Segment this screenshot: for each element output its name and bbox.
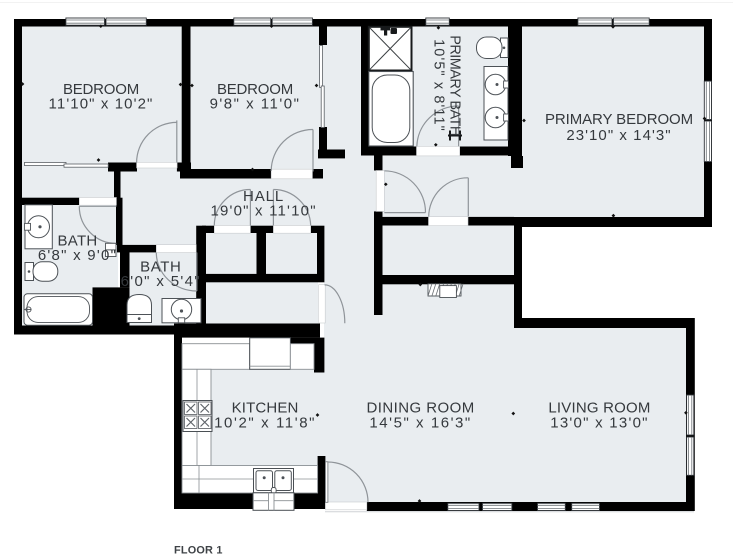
svg-text:FLOOR 1: FLOOR 1 [174,545,223,557]
svg-text:13'0" x 13'0": 13'0" x 13'0" [550,414,649,431]
svg-text:PRIMARY BEDROOM: PRIMARY BEDROOM [545,111,693,128]
svg-text:9'8" x 11'0": 9'8" x 11'0" [210,96,301,113]
svg-text:23'10" x 14'3": 23'10" x 14'3" [566,127,671,144]
svg-text:6'8" x 9'0": 6'8" x 9'0" [38,247,117,264]
svg-text:10'5" x 8'11": 10'5" x 8'11" [430,39,446,132]
svg-text:10'2" x 11'8": 10'2" x 11'8" [214,414,316,431]
svg-text:PRIMARY BATH: PRIMARY BATH [446,35,462,136]
svg-text:6'0" x 5'4": 6'0" x 5'4" [121,273,201,290]
svg-text:19'0" x 11'10": 19'0" x 11'10" [210,203,316,220]
svg-text:11'10" x 10'2": 11'10" x 10'2" [49,96,154,113]
svg-text:14'5" x 16'3": 14'5" x 16'3" [369,414,471,431]
